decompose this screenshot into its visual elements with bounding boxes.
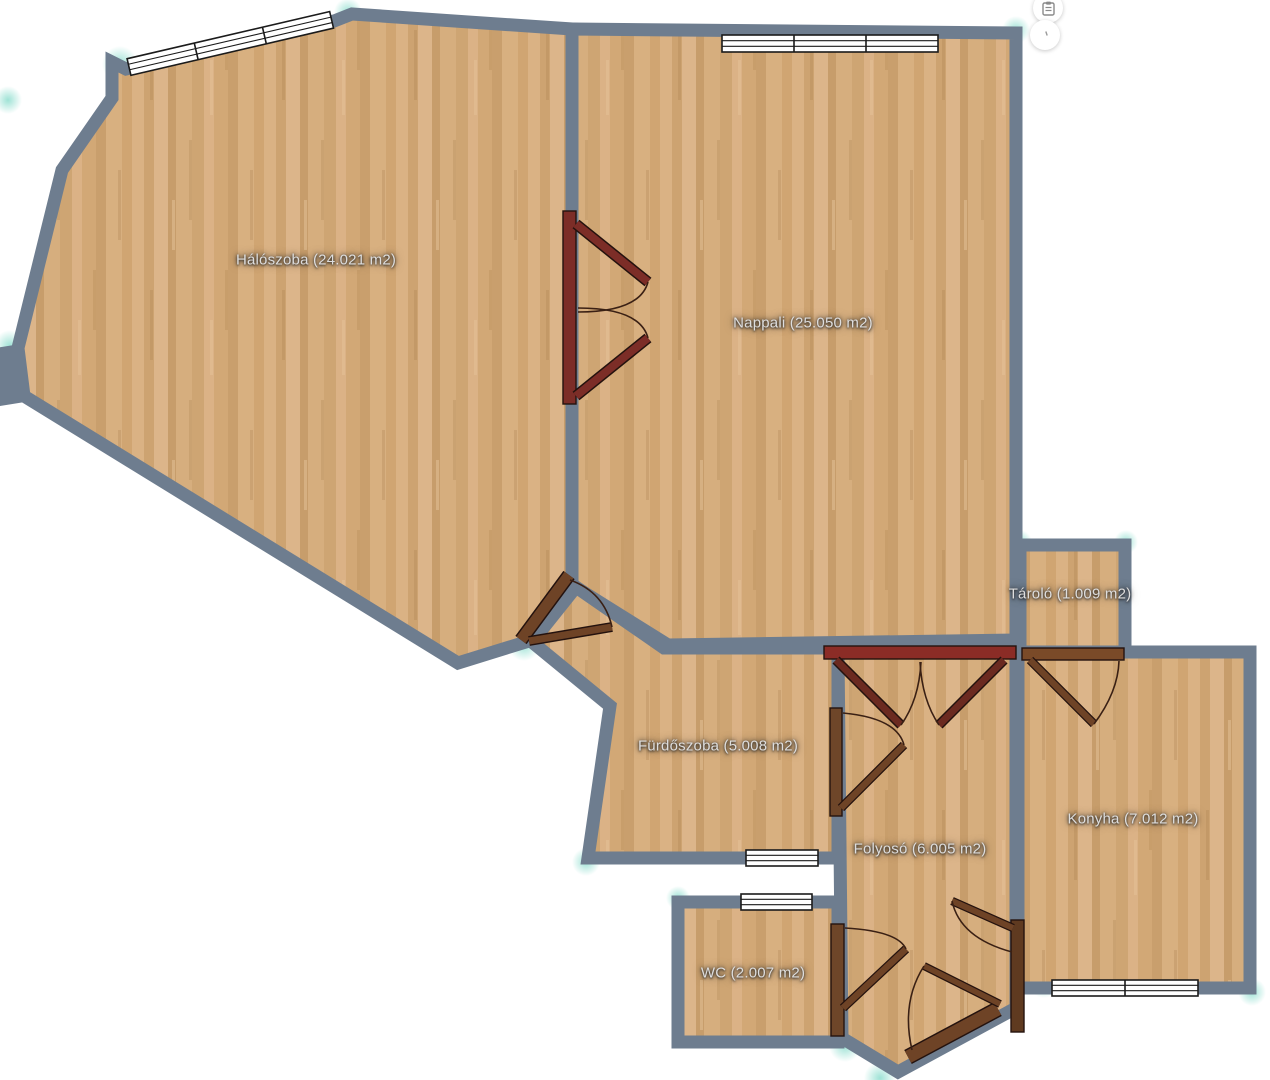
small-mark-icon (1040, 30, 1050, 40)
floorplan-canvas[interactable] (0, 0, 1270, 1080)
room-label-wc[interactable]: WC (2.007 m2) (701, 965, 805, 982)
room-label-tarolo[interactable]: Tároló (1.009 m2) (1009, 586, 1132, 603)
wc-top-window[interactable] (741, 894, 812, 910)
room-label-folyoso[interactable]: Folyosó (6.005 m2) (854, 841, 987, 858)
room-label-konyha[interactable]: Konyha (7.012 m2) (1068, 811, 1199, 828)
room-label-haloszoba[interactable]: Hálószoba (24.021 m2) (236, 252, 396, 269)
bathroom-bottom-window[interactable] (746, 850, 818, 866)
floorplan-stage: Hálószoba (24.021 m2) Nappali (25.050 m2… (0, 0, 1270, 1080)
livingroom-top-window[interactable] (722, 35, 938, 52)
room-label-nappali[interactable]: Nappali (25.050 m2) (733, 315, 873, 332)
room-nappali-floor[interactable] (572, 29, 1016, 645)
room-label-furdoszoba[interactable]: Fürdőszoba (5.008 m2) (638, 738, 798, 755)
kitchen-bottom-window[interactable] (1052, 980, 1198, 996)
clipboard-icon (1042, 1, 1055, 16)
room-haloszoba-floor[interactable] (18, 14, 572, 663)
secondary-button[interactable] (1030, 20, 1060, 50)
